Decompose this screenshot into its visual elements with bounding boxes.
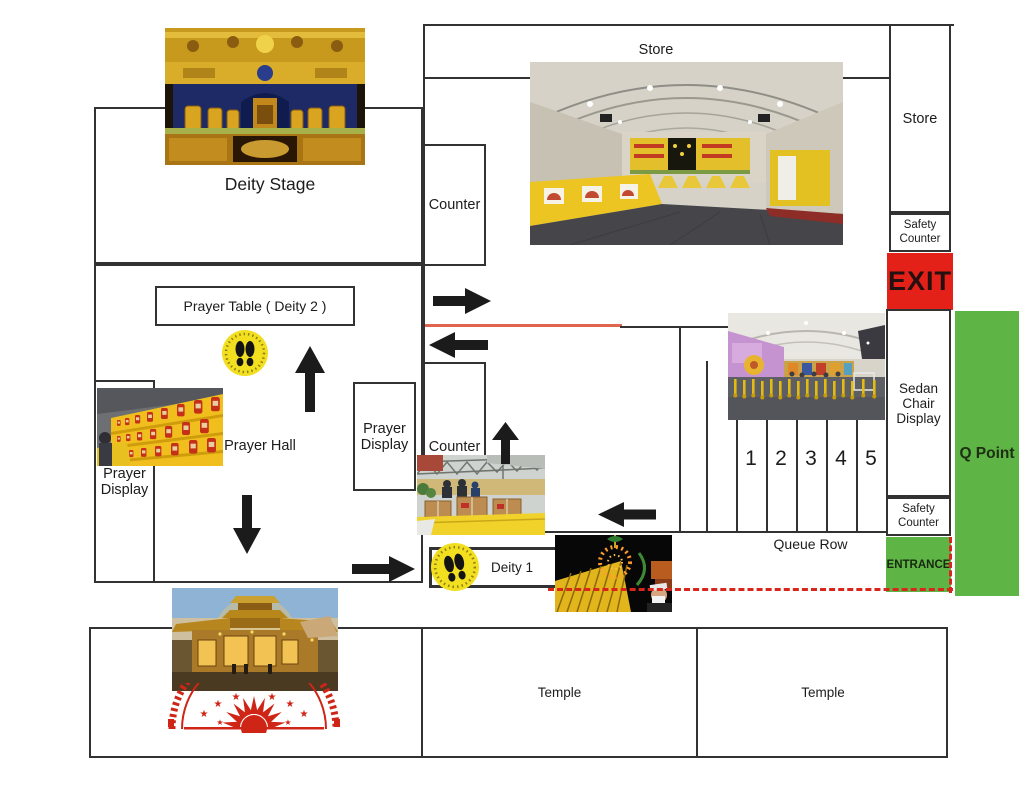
deity-stage-photo — [165, 28, 365, 165]
queue-lane-line-2 — [766, 419, 768, 533]
qpoint-label: Q Point — [959, 445, 1014, 463]
footprints-sticker-icon — [222, 330, 268, 376]
arrow-right-top-icon — [433, 288, 491, 314]
wall-queue-inner — [706, 361, 708, 533]
arrow-up-icon — [295, 346, 325, 412]
svg-text:★: ★ — [232, 692, 241, 703]
route-red-line — [425, 324, 622, 327]
queue-lane-number-3: 3 — [797, 447, 825, 471]
store-top-label: Store — [556, 42, 756, 58]
queue-lane-line-1 — [736, 419, 738, 533]
qpoint-strip: Q Point — [955, 311, 1019, 596]
wall-mid-segment — [620, 326, 730, 328]
box-prayer-table-deity2: Prayer Table ( Deity 2 ) — [155, 286, 355, 326]
svg-text:★: ★ — [300, 709, 309, 720]
exit-label: EXIT — [888, 266, 952, 297]
svg-text:★: ★ — [200, 709, 209, 720]
svg-text:★: ★ — [284, 718, 291, 727]
temple-fan-logo: ★★★ ★★★ ★★ — [160, 683, 348, 733]
box-counter-top: Counter — [423, 144, 486, 266]
svg-text:★: ★ — [216, 718, 223, 727]
arrow-right-bottom-icon — [352, 556, 415, 582]
deity-stage-label: Deity Stage — [170, 174, 370, 195]
queue-lane-line-3 — [796, 419, 798, 533]
arrow-left-top-icon — [429, 332, 488, 358]
temple-left-label: Temple — [538, 685, 582, 700]
box-prayer-display-mid: Prayer Display — [353, 382, 416, 491]
box-safety-counter-top: Safety Counter — [889, 213, 951, 252]
box-store-right: Store — [889, 24, 951, 213]
arrow-left-mid-icon — [598, 502, 656, 527]
safety-counter-top-label: Safety Counter — [891, 219, 949, 247]
svg-text:★: ★ — [286, 699, 295, 710]
queue-lane-number-2: 2 — [767, 447, 795, 471]
sedan-queue-photo — [728, 313, 885, 420]
svg-text:★: ★ — [214, 699, 223, 710]
queue-lane-number-5: 5 — [857, 447, 885, 471]
counter-boxes-photo — [417, 455, 545, 535]
temple-photo — [172, 588, 338, 691]
prayer-display-mid-label: Prayer Display — [355, 421, 414, 453]
prayer-display-left-label: Prayer Display — [96, 466, 153, 498]
queue-lane-line-5 — [856, 419, 858, 533]
queue-lane-number-4: 4 — [827, 447, 855, 471]
prayer-hall-label: Prayer Hall — [220, 438, 300, 454]
wall-top — [423, 24, 954, 26]
queue-lane-number-1: 1 — [737, 447, 765, 471]
wall-queue-left — [679, 326, 681, 533]
safety-counter-bottom-label: Safety Counter — [888, 503, 949, 531]
entry-barrier-dashed-line — [548, 588, 953, 591]
temple-right-label: Temple — [801, 685, 845, 700]
box-safety-counter-bottom: Safety Counter — [886, 497, 951, 536]
room-temple-left: Temple — [423, 627, 696, 758]
queue-row-label: Queue Row — [753, 536, 868, 552]
counter-top-label: Counter — [429, 197, 481, 213]
store-right-label: Store — [903, 111, 938, 127]
entrance-dashed-edge — [949, 537, 952, 593]
entrance-zone: ENTRANCE — [886, 537, 951, 592]
prayer-table-label: Prayer Table ( Deity 2 ) — [184, 298, 327, 314]
counter-mid-label: Counter — [423, 439, 486, 455]
room-temple-right: Temple — [698, 627, 948, 758]
arrow-up-small-icon — [492, 422, 519, 464]
svg-text:★: ★ — [268, 692, 277, 703]
footprints-sticker-icon — [431, 543, 479, 591]
prayer-items-shelf-photo — [97, 388, 223, 466]
arrow-down-icon — [233, 495, 261, 554]
sedan-chair-display-label: Sedan Chair Display — [888, 381, 949, 426]
deity1-night-photo — [555, 535, 672, 612]
entrance-label: ENTRANCE — [887, 559, 951, 571]
store-hall-photo — [530, 62, 843, 245]
box-sedan-chair-display: Sedan Chair Display — [886, 309, 951, 497]
exit-zone: EXIT — [887, 253, 953, 310]
queue-lane-line-4 — [826, 419, 828, 533]
temple-floor-plan: Prayer Table ( Deity 2 ) Prayer Display … — [0, 0, 1024, 791]
